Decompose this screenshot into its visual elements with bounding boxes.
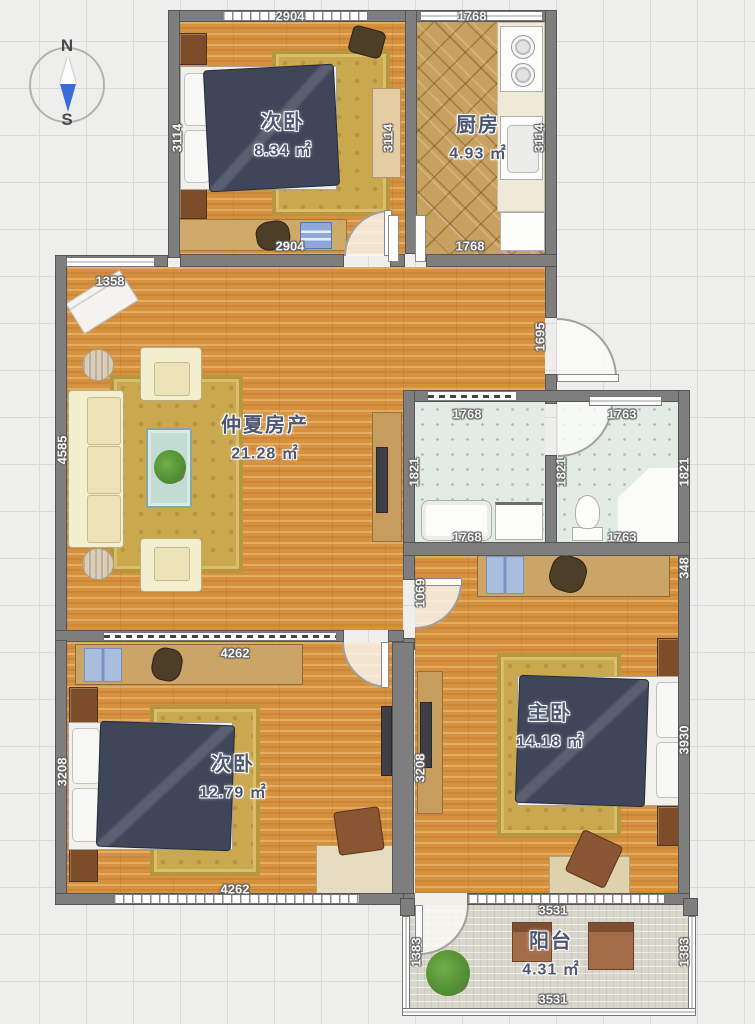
balcony-window [402, 1008, 696, 1016]
bench-icon [372, 88, 401, 178]
flower-plant-icon [426, 950, 470, 996]
shirt-icon [84, 648, 122, 682]
sofa-cushion-icon [87, 446, 121, 494]
sink-icon [500, 116, 543, 180]
wall [426, 254, 557, 267]
wall [403, 542, 690, 556]
window [222, 11, 368, 21]
window [113, 894, 360, 904]
compass: N S [22, 38, 112, 128]
side-table-icon [82, 548, 114, 580]
entry-door-arc [557, 318, 617, 378]
sofa-cushion-icon [87, 495, 121, 543]
side-table-icon [82, 349, 114, 381]
sofa-icon [68, 390, 124, 548]
wall [392, 642, 414, 905]
compass-needle-north-icon [60, 56, 76, 84]
computer-icon [300, 222, 332, 249]
duvet-icon [515, 675, 649, 807]
balcony-chair-icon [588, 922, 634, 970]
floor-living-entry [403, 267, 545, 390]
armchair-icon [140, 347, 202, 401]
duvet-icon [96, 721, 235, 852]
tv-icon [376, 447, 388, 513]
wall [180, 254, 344, 267]
toilet-tank-icon [572, 527, 603, 541]
armchair-seat-icon [154, 362, 190, 396]
pillow-icon [72, 728, 100, 784]
window [589, 396, 662, 406]
burner-icon [511, 35, 535, 59]
wall [683, 898, 698, 916]
floor-plan-canvas: N S [0, 0, 755, 1024]
wall [55, 255, 67, 650]
nightstand-icon [69, 845, 98, 882]
chair-back-icon [589, 923, 633, 932]
plant-icon [154, 450, 186, 484]
balcony-chair-icon [512, 922, 552, 962]
sink-basin-icon [507, 125, 539, 173]
entry-door-panel [557, 374, 619, 382]
toilet-icon [575, 495, 600, 529]
tv-icon [381, 706, 392, 776]
wall [678, 390, 690, 905]
window [66, 257, 155, 267]
chair-back-icon [513, 923, 551, 932]
window [467, 894, 665, 904]
duvet-icon [203, 64, 340, 193]
sofa-cushion-icon [87, 397, 121, 445]
window [420, 11, 543, 21]
nightstand-icon [179, 188, 207, 219]
wall [388, 630, 404, 642]
sliding-door [427, 391, 517, 401]
master-door-panel [415, 578, 462, 586]
armchair-icon [140, 538, 202, 592]
wall [545, 455, 557, 545]
kitchen-door-panel [415, 215, 426, 262]
tv-icon [420, 702, 432, 768]
bath-cabinet-icon [495, 502, 543, 540]
interior-window [103, 632, 337, 641]
kitchen-cabinet-icon [500, 212, 545, 251]
nightstand-icon [179, 33, 207, 65]
armchair-seat-icon [154, 547, 190, 581]
stove-icon [500, 26, 543, 92]
kitchen-door-panel [388, 215, 399, 262]
balcony-door-panel [415, 905, 423, 952]
nightstand-icon [69, 687, 98, 723]
burner-icon [511, 63, 535, 87]
wall [55, 640, 67, 905]
compass-needle-south-icon [60, 84, 76, 112]
shower-tray-icon [421, 500, 492, 541]
wall [545, 10, 557, 318]
balcony-window [688, 916, 696, 1011]
chair-icon [333, 806, 385, 856]
wall [400, 898, 415, 916]
door-opening [415, 893, 467, 905]
bedroom-door-panel [381, 642, 389, 688]
compass-north-label: N [22, 36, 112, 56]
balcony-window [402, 916, 410, 1011]
compass-south-label: S [22, 110, 112, 130]
shirt-icon [486, 556, 524, 594]
wall [168, 10, 180, 258]
